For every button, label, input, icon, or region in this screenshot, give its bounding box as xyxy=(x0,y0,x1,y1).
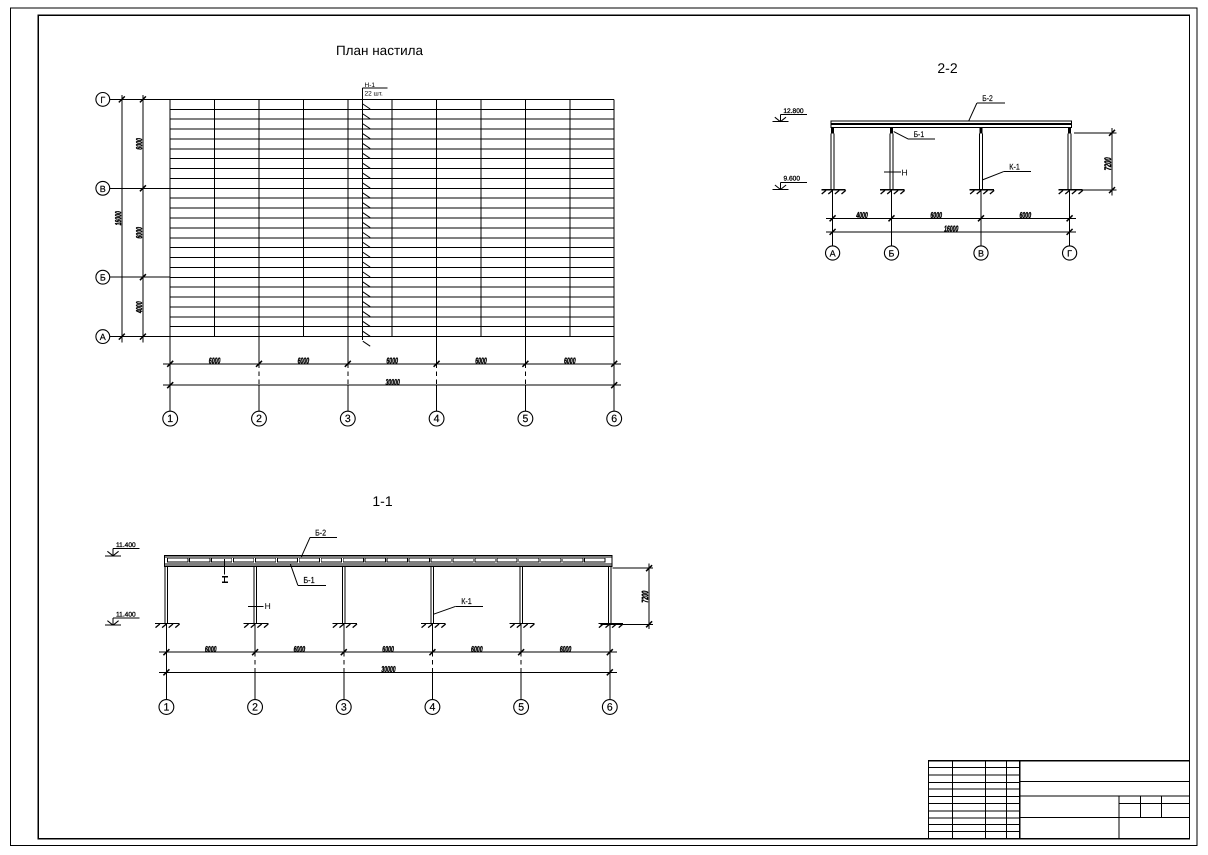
svg-text:Б-1: Б-1 xyxy=(303,575,314,585)
svg-text:Б-2: Б-2 xyxy=(982,94,993,103)
svg-text:6000: 6000 xyxy=(382,644,394,654)
svg-text:Б: Б xyxy=(100,273,106,283)
svg-text:6000: 6000 xyxy=(134,138,144,150)
svg-text:6: 6 xyxy=(611,413,617,425)
svg-text:6000: 6000 xyxy=(560,644,572,654)
svg-text:6000: 6000 xyxy=(564,356,576,366)
svg-text:11.400: 11.400 xyxy=(116,611,136,618)
svg-text:16000: 16000 xyxy=(944,224,958,234)
svg-text:1: 1 xyxy=(167,413,173,425)
svg-text:Н: Н xyxy=(265,601,271,611)
svg-text:11.400: 11.400 xyxy=(116,542,136,549)
svg-text:7200: 7200 xyxy=(640,591,650,603)
svg-text:16000: 16000 xyxy=(113,211,123,225)
svg-text:1: 1 xyxy=(163,702,169,714)
svg-text:План настила: План настила xyxy=(336,43,424,58)
svg-text:Н: Н xyxy=(902,167,908,177)
svg-text:6000: 6000 xyxy=(471,644,483,654)
svg-text:3: 3 xyxy=(345,413,351,425)
svg-text:6000: 6000 xyxy=(930,210,942,220)
svg-text:6000: 6000 xyxy=(298,356,310,366)
svg-text:6: 6 xyxy=(607,702,613,714)
svg-text:5: 5 xyxy=(518,702,524,714)
svg-text:6000: 6000 xyxy=(386,356,398,366)
svg-text:А: А xyxy=(830,249,836,259)
svg-text:30000: 30000 xyxy=(386,377,400,387)
svg-text:К-1: К-1 xyxy=(1009,163,1020,172)
svg-text:А: А xyxy=(100,332,106,342)
svg-text:4: 4 xyxy=(430,702,436,714)
svg-text:В: В xyxy=(100,184,106,194)
svg-text:5: 5 xyxy=(522,413,528,425)
svg-text:12.800: 12.800 xyxy=(783,108,804,115)
svg-text:1-1: 1-1 xyxy=(372,493,392,509)
svg-text:2: 2 xyxy=(256,413,262,425)
svg-text:9.600: 9.600 xyxy=(784,176,801,183)
svg-text:Б: Б xyxy=(889,249,895,259)
svg-text:Б-1: Б-1 xyxy=(914,130,925,139)
svg-text:6000: 6000 xyxy=(209,356,221,366)
svg-text:6000: 6000 xyxy=(1020,210,1032,220)
svg-text:Б-2: Б-2 xyxy=(315,527,326,537)
svg-text:2: 2 xyxy=(252,702,258,714)
svg-text:В: В xyxy=(978,249,984,259)
svg-text:6000: 6000 xyxy=(134,227,144,239)
svg-text:2-2: 2-2 xyxy=(937,60,957,76)
svg-text:7200: 7200 xyxy=(1103,157,1114,170)
svg-text:30000: 30000 xyxy=(381,664,395,674)
svg-text:6000: 6000 xyxy=(205,644,217,654)
svg-text:22 шт.: 22 шт. xyxy=(365,91,384,98)
svg-text:6000: 6000 xyxy=(294,644,306,654)
svg-text:4000: 4000 xyxy=(856,210,868,220)
svg-text:4: 4 xyxy=(434,413,440,425)
svg-text:4000: 4000 xyxy=(134,301,144,313)
svg-text:6000: 6000 xyxy=(475,356,487,366)
svg-text:К-1: К-1 xyxy=(461,596,472,606)
svg-text:Г: Г xyxy=(1067,249,1072,259)
svg-text:3: 3 xyxy=(341,702,347,714)
svg-text:Г: Г xyxy=(100,95,105,105)
